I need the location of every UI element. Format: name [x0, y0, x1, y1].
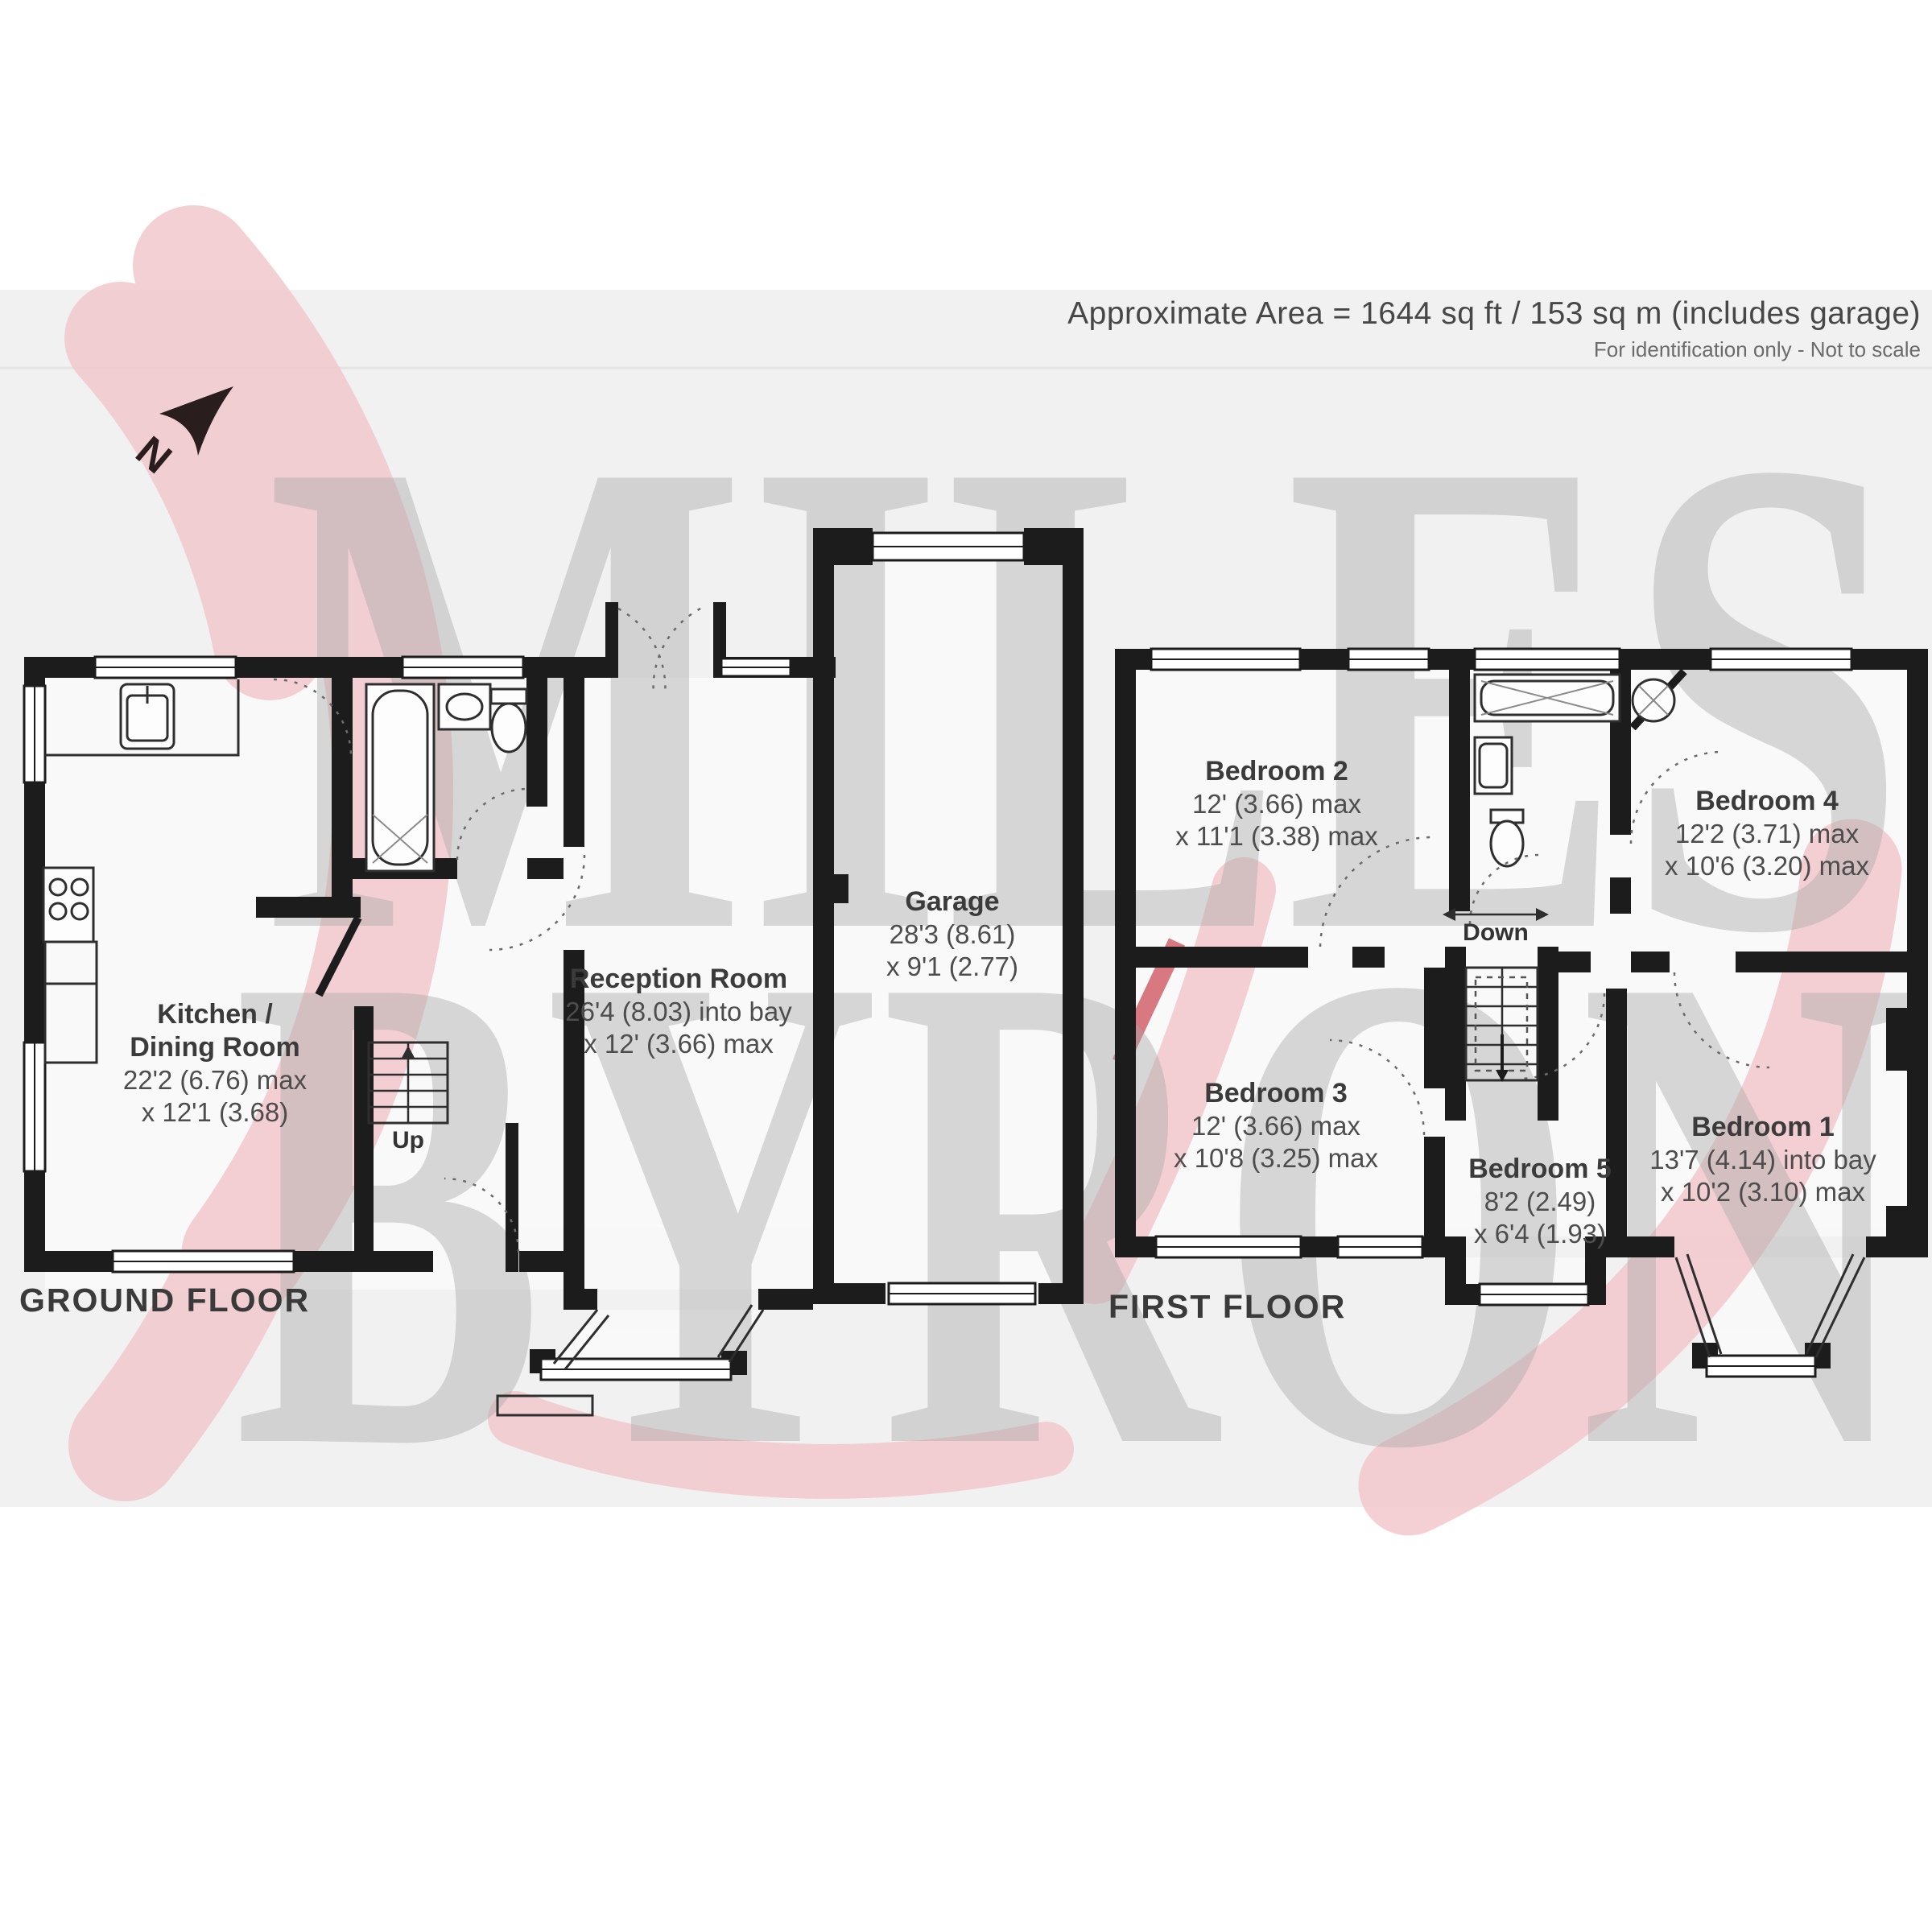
- room-label-bedroom1: Bedroom 1 13'7 (4.14) into bay x 10'2 (3…: [1649, 1111, 1876, 1208]
- stairs-up-label: Up: [392, 1127, 424, 1154]
- corner-basin-icon: [1633, 679, 1674, 721]
- basin-icon: [1475, 737, 1512, 794]
- room-dimensions: x 12'1 (3.68): [123, 1096, 307, 1129]
- hob-icon: [43, 868, 93, 942]
- room-dimensions: 13'7 (4.14) into bay: [1649, 1144, 1876, 1176]
- room-name: Bedroom 5: [1468, 1153, 1612, 1186]
- toilet-icon: [1491, 810, 1523, 866]
- room-dimensions: x 12' (3.66) max: [565, 1028, 791, 1060]
- room-dimensions: x 10'8 (3.25) max: [1174, 1142, 1378, 1174]
- room-name: Bedroom 4: [1665, 785, 1869, 818]
- room-name: Bedroom 1: [1649, 1111, 1876, 1144]
- room-dimensions: 12'2 (3.71) max: [1665, 818, 1869, 850]
- floorplan-page: MILES BYRON N: [0, 0, 1932, 1932]
- room-dimensions: 12' (3.66) max: [1175, 788, 1377, 820]
- room-name: Bedroom 3: [1174, 1077, 1378, 1110]
- room-dimensions: 8'2 (2.49): [1468, 1186, 1612, 1218]
- room-dimensions: x 10'2 (3.10) max: [1649, 1176, 1876, 1208]
- room-label-reception: Reception Room 26'4 (8.03) into bay x 12…: [565, 963, 791, 1060]
- room-dimensions: x 6'4 (1.93): [1468, 1218, 1612, 1250]
- room-dimensions: x 11'1 (3.38) max: [1175, 820, 1377, 852]
- basin-icon: [439, 684, 490, 729]
- room-label-bedroom5: Bedroom 5 8'2 (2.49) x 6'4 (1.93): [1468, 1153, 1612, 1250]
- room-name: Reception Room: [565, 963, 791, 996]
- room-dimensions: x 9'1 (2.77): [886, 951, 1018, 983]
- room-dimensions: 26'4 (8.03) into bay: [565, 996, 791, 1028]
- approximate-area-text: Approximate Area = 1644 sq ft / 153 sq m…: [1067, 296, 1921, 332]
- room-name: Dining Room: [123, 1031, 307, 1064]
- ground-floor-label: GROUND FLOOR: [19, 1282, 310, 1319]
- room-name: Bedroom 2: [1175, 755, 1377, 788]
- room-dimensions: 28'3 (8.61): [886, 919, 1018, 951]
- room-name: Kitchen /: [123, 998, 307, 1031]
- room-label-bedroom2: Bedroom 2 12' (3.66) max x 11'1 (3.38) m…: [1175, 755, 1377, 852]
- stairs-down-label: Down: [1463, 919, 1529, 947]
- room-dimensions: x 10'6 (3.20) max: [1665, 850, 1869, 882]
- room-label-kitchen-dining: Kitchen / Dining Room 22'2 (6.76) max x …: [123, 998, 307, 1129]
- room-label-bedroom4: Bedroom 4 12'2 (3.71) max x 10'6 (3.20) …: [1665, 785, 1869, 882]
- toilet-icon: [491, 689, 526, 752]
- room-dimensions: 12' (3.66) max: [1174, 1110, 1378, 1142]
- room-label-bedroom3: Bedroom 3 12' (3.66) max x 10'8 (3.25) m…: [1174, 1077, 1378, 1174]
- room-name: Garage: [886, 885, 1018, 919]
- disclaimer-text: For identification only - Not to scale: [1594, 337, 1921, 362]
- bathtub-icon: [366, 684, 434, 871]
- room-label-garage: Garage 28'3 (8.61) x 9'1 (2.77): [886, 885, 1018, 983]
- room-dimensions: 22'2 (6.76) max: [123, 1064, 307, 1096]
- first-floor-label: FIRST FLOOR: [1108, 1288, 1346, 1326]
- bathtub-icon: [1475, 675, 1620, 721]
